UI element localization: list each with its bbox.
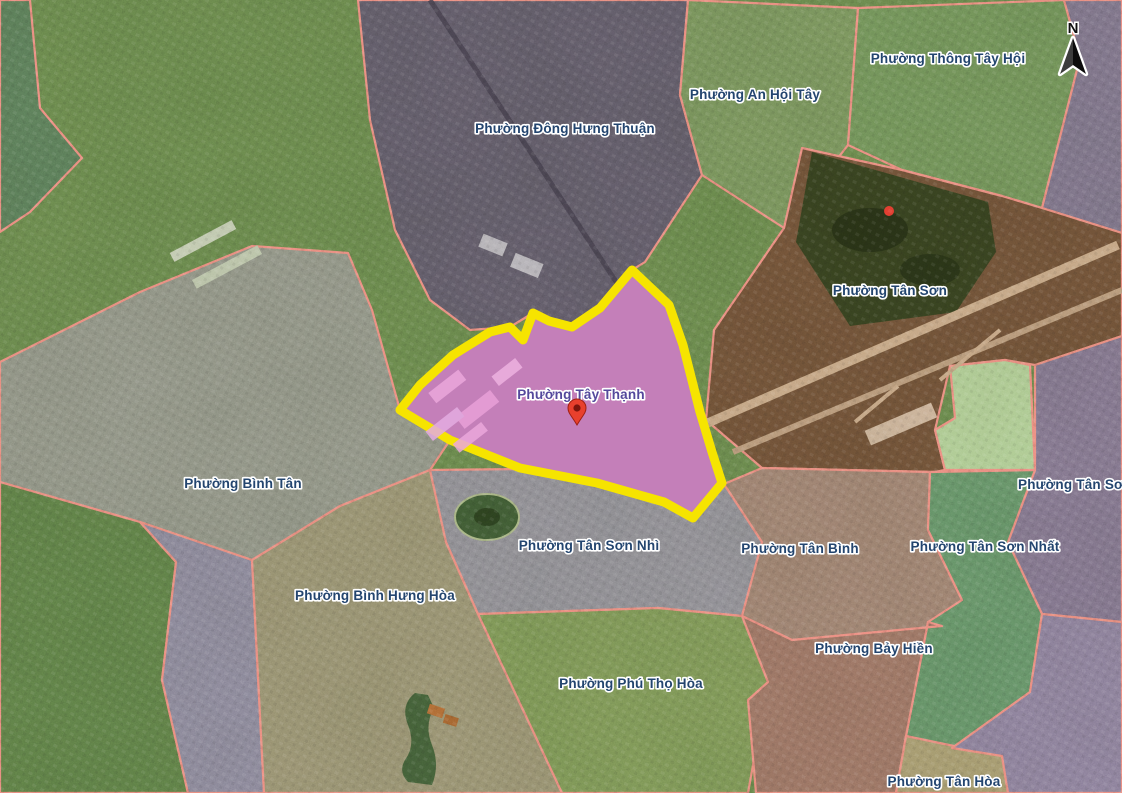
pin-center-dot [573, 404, 580, 411]
compass-n-label: N [1068, 20, 1079, 37]
ward-label: Phường Tân Sơn H [1018, 477, 1122, 492]
ward-label: Phường Đông Hưng Thuận [475, 121, 655, 136]
ward-label: Phường Phú Thọ Hòa [559, 676, 703, 691]
ward-label: Phường An Hội Tây [690, 87, 821, 102]
ward-label: Phường Bảy Hiền [815, 641, 933, 656]
map-viewport[interactable]: Phường Đông Hưng ThuậnPhường An Hội TâyP… [0, 0, 1122, 793]
map-canvas[interactable]: Phường Đông Hưng ThuậnPhường An Hội TâyP… [0, 0, 1122, 793]
ward-label: Phường Tân Hòa [888, 774, 1001, 789]
ward-label: Phường Tân Sơn Nhất [910, 539, 1059, 554]
ward-label: Phường Tân Sơn [833, 283, 947, 298]
ward-label: Phường Bình Tân [184, 476, 302, 491]
ward-label: Phường Bình Hưng Hòa [295, 588, 455, 603]
ward-label: Phường Thông Tây Hội [871, 51, 1026, 66]
ward-label: Phường Tân Sơn Nhì [519, 538, 660, 553]
ward-label: Phường Tân Bình [741, 541, 859, 556]
